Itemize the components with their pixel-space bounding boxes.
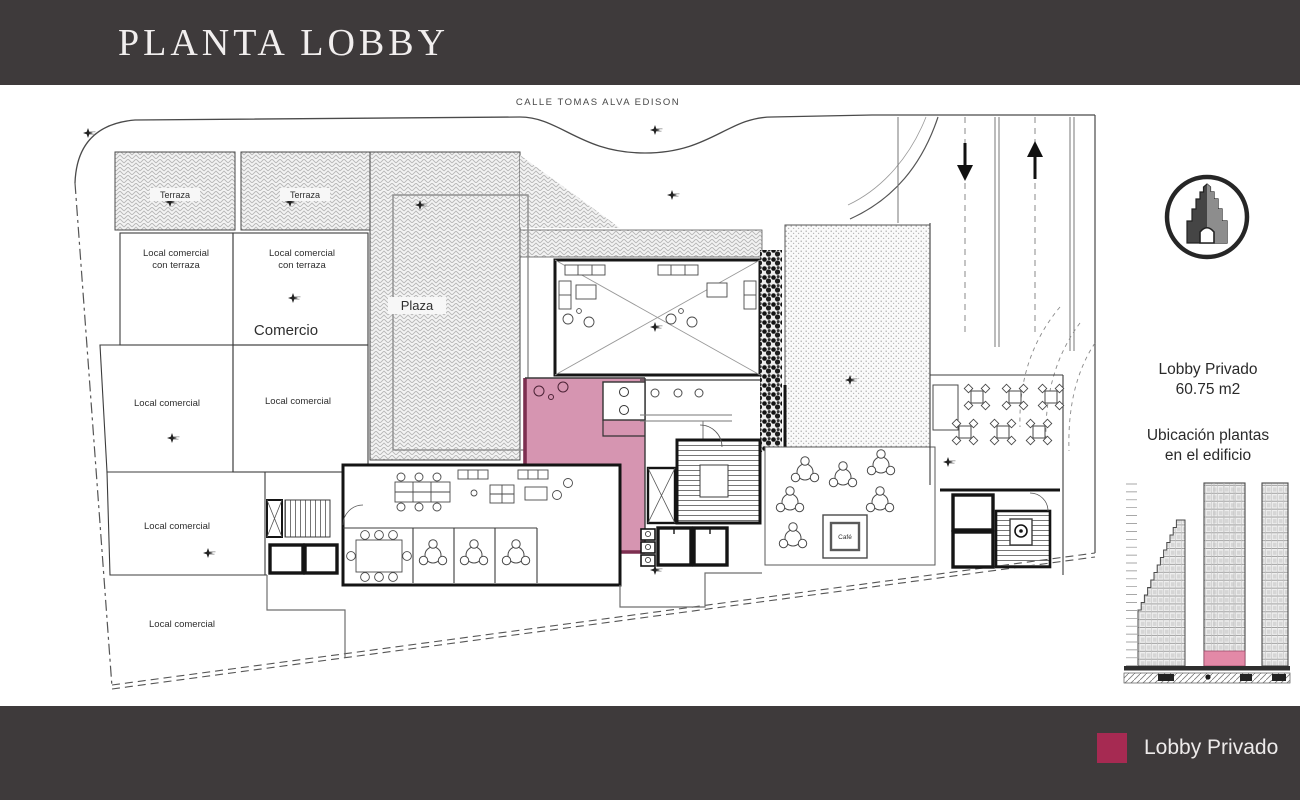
wc-stalls: [641, 529, 655, 566]
legend: Lobby Privado: [1097, 733, 1278, 763]
comercio-label: Comercio: [254, 322, 318, 339]
building-outline-step: [620, 573, 762, 607]
page-title: PLANTA LOBBY: [118, 21, 449, 65]
brand-logo: [1163, 173, 1251, 261]
local-a-label: Local comercial: [134, 398, 200, 409]
amenity-area: [343, 465, 620, 585]
location-caption: Ubicación plantas en el edificio: [1120, 426, 1296, 466]
ground-line: [1124, 666, 1290, 683]
garden-area: [785, 225, 930, 455]
building-elevation: [1122, 470, 1294, 705]
local-terraza-1-label2: con terraza: [152, 260, 200, 271]
area-summary: Lobby Privado 60.75 m2: [1120, 360, 1296, 400]
terraza-left-label: Terraza: [160, 190, 190, 200]
location-line1: Ubicación plantas: [1120, 426, 1296, 446]
traffic-arrow-up-icon: [1027, 141, 1043, 179]
traffic-arrow-down-icon: [957, 143, 973, 181]
legend-label: Lobby Privado: [1144, 736, 1278, 760]
local-d-label: Local comercial: [149, 619, 215, 630]
cafe-label: Café: [838, 534, 852, 541]
turning-radius-guides: [1020, 307, 1095, 451]
area-title: Lobby Privado: [1120, 360, 1296, 380]
commercial-rooms: [100, 233, 368, 657]
local-terraza-2-label: Local comercial: [269, 248, 335, 259]
right-tower: [1262, 483, 1288, 666]
east-core: [940, 490, 1060, 567]
header-bar: PLANTA LOBBY: [0, 0, 1300, 85]
lobby-highlight-band: [1204, 651, 1245, 666]
hedge-strip: [760, 250, 782, 452]
street-label: CALLE TOMAS ALVA EDISON: [516, 97, 680, 108]
floor-ticks: [1126, 484, 1137, 666]
local-c-label: Local comercial: [144, 521, 210, 532]
local-terraza-2-label2: con terraza: [278, 260, 326, 271]
plaza-label: Plaza: [401, 298, 434, 313]
floor-plan: Café: [60, 95, 1100, 707]
local-b-label: Local comercial: [265, 396, 331, 407]
area-size: 60.75 m2: [1120, 380, 1296, 400]
cafe-terrace: Café: [765, 447, 935, 565]
main-tower: [1204, 483, 1245, 666]
slide: PLANTA LOBBY: [0, 0, 1300, 800]
cafe-kiosk: Café: [823, 515, 867, 558]
terraza-right-label: Terraza: [290, 190, 320, 200]
west-core: [267, 500, 337, 573]
location-line2: en el edificio: [1120, 446, 1296, 466]
stepped-tower: [1138, 520, 1185, 666]
local-terraza-1-label: Local comercial: [143, 248, 209, 259]
legend-swatch: [1097, 733, 1127, 763]
central-core: [640, 380, 760, 566]
